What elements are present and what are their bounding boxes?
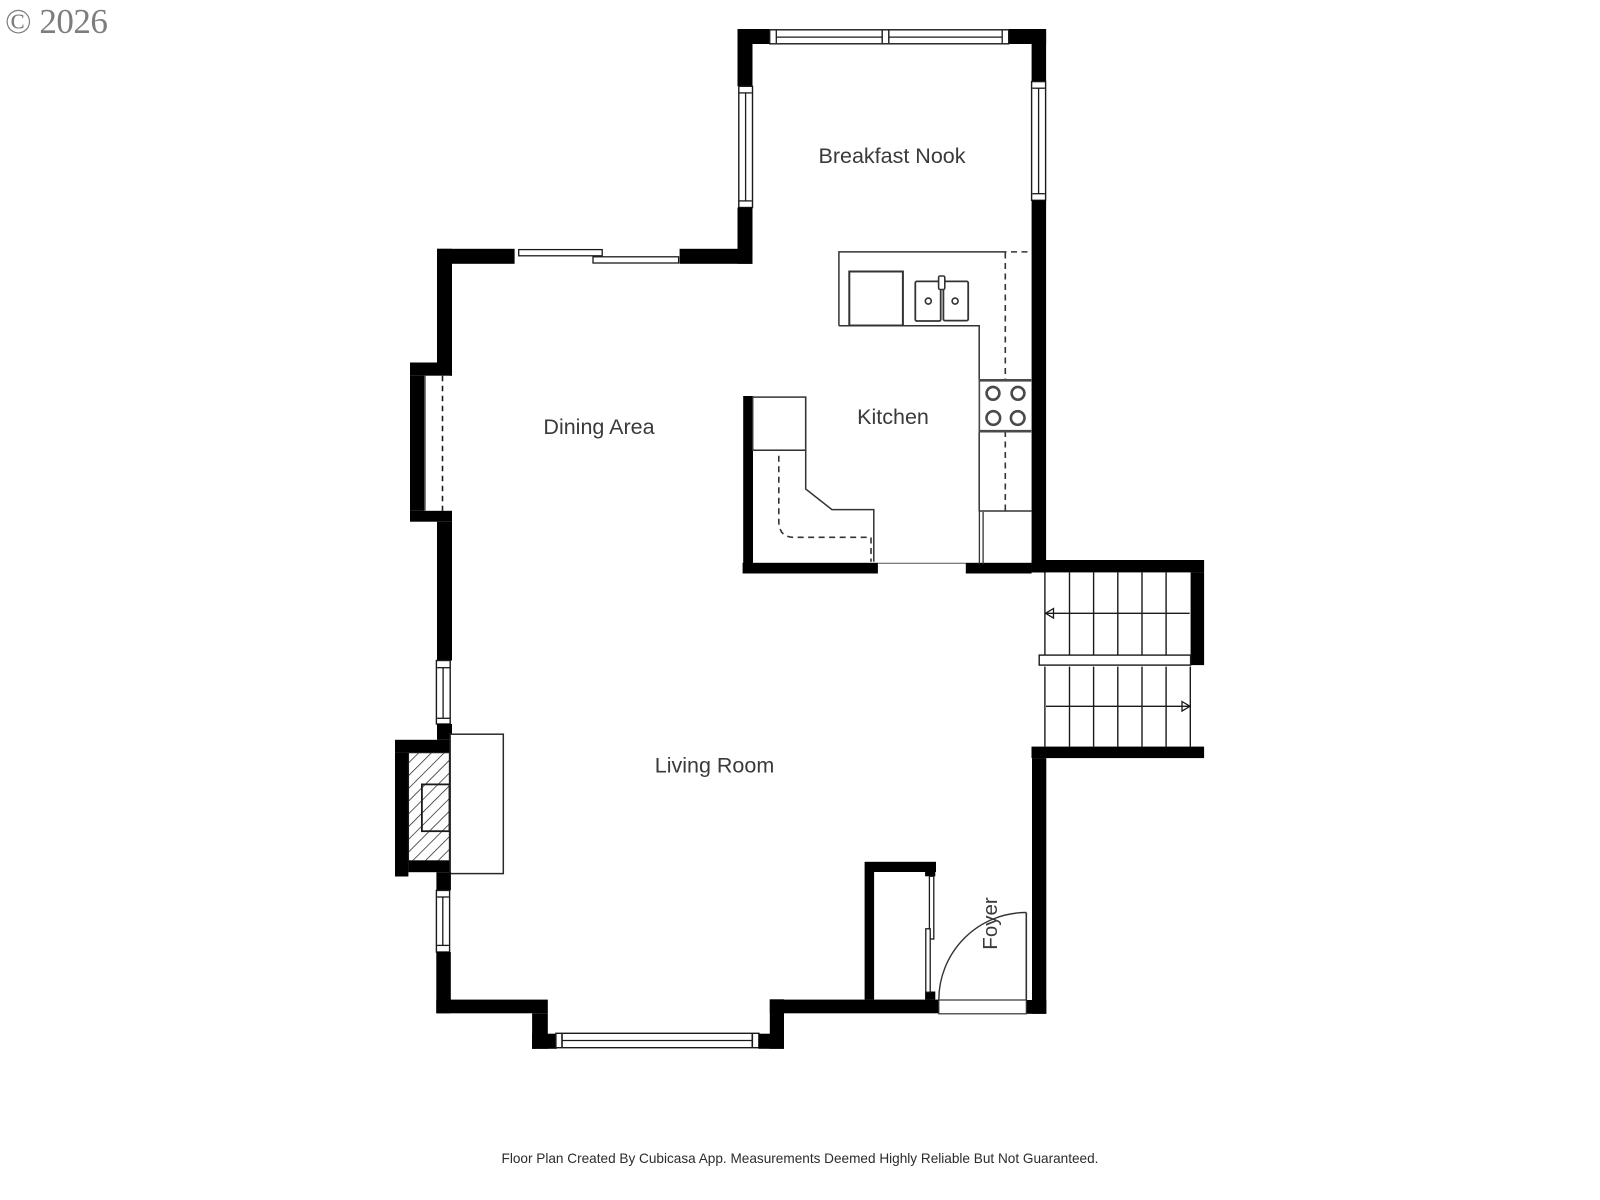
svg-text:© 2026: © 2026 [5,2,107,41]
svg-text:Breakfast Nook: Breakfast Nook [819,144,966,168]
svg-text:Living Room: Living Room [655,754,775,778]
svg-text:Dining Area: Dining Area [543,415,654,439]
svg-text:Kitchen: Kitchen [857,405,929,429]
svg-text:Floor Plan Created By Cubicasa: Floor Plan Created By Cubicasa App. Meas… [502,1151,1099,1166]
svg-text:Foyer: Foyer [979,897,1002,950]
